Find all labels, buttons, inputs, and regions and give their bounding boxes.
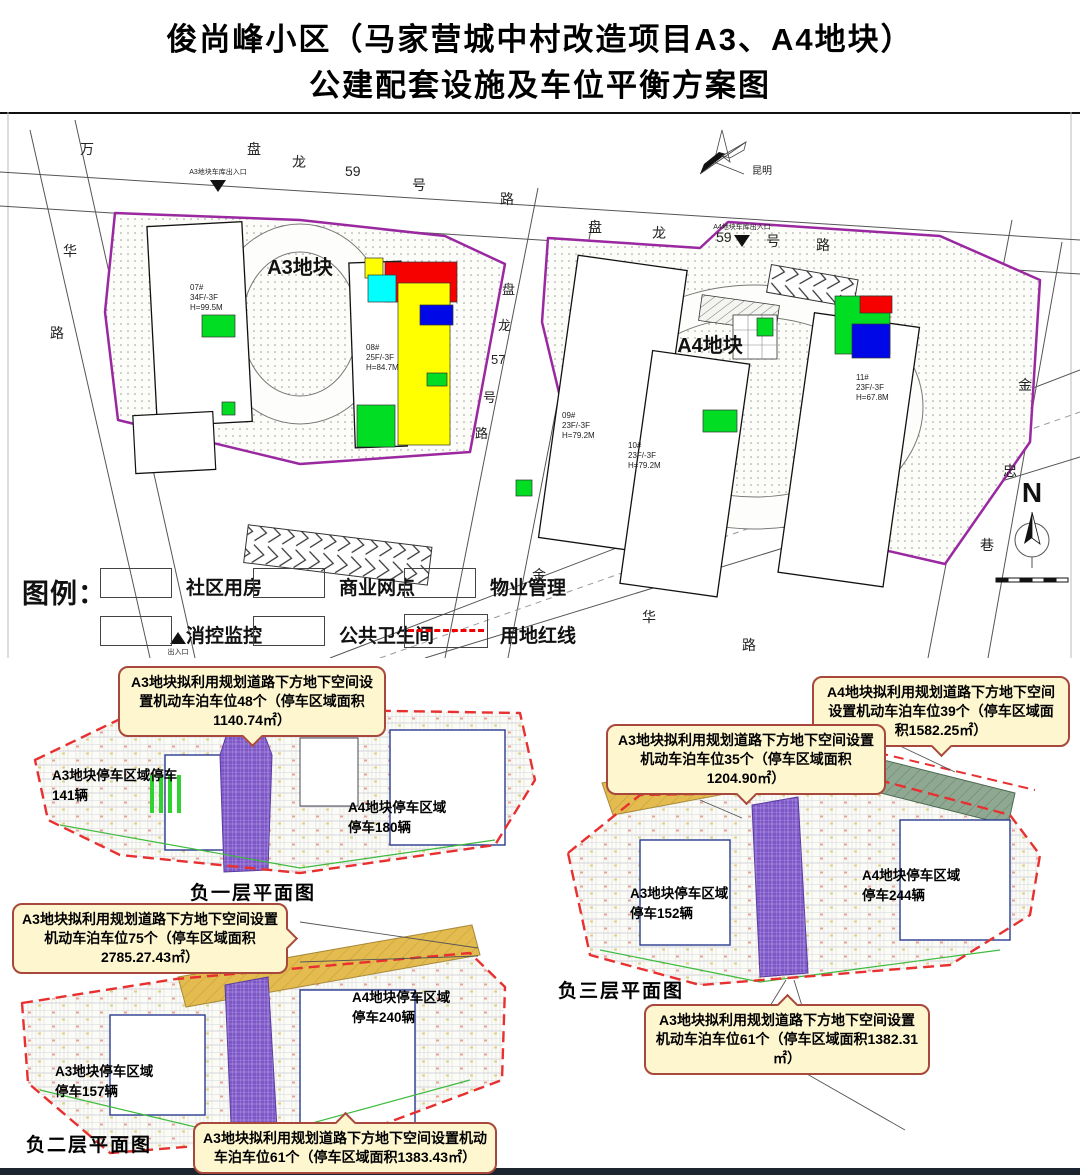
legend-label-redline: 用地红线 — [500, 621, 576, 648]
legend-label-firecontrol: 消控监控 — [186, 621, 262, 648]
svg-text:10#: 10# — [628, 441, 642, 450]
svg-text:25F/-3F: 25F/-3F — [366, 353, 394, 362]
callout-b2-a3-61: A3地块拟利用规划道路下方地下空间设置机动车泊车位61个（停车区域面积1383.… — [193, 1122, 497, 1174]
svg-text:号: 号 — [766, 233, 780, 249]
svg-text:57: 57 — [491, 352, 505, 367]
svg-text:路: 路 — [500, 191, 514, 207]
svg-text:23F/-3F: 23F/-3F — [856, 383, 884, 392]
callout-b1-a3-48: A3地块拟利用规划道路下方地下空间设置机动车泊车位48个（停车区域面积1140.… — [118, 666, 386, 737]
sheet-bottom-border — [0, 1168, 1080, 1175]
svg-text:华: 华 — [63, 243, 77, 259]
legend-swatch-toilet — [253, 616, 325, 646]
svg-text:23F/-3F: 23F/-3F — [562, 421, 590, 430]
svg-text:09#: 09# — [562, 411, 576, 420]
svg-text:金: 金 — [1018, 377, 1032, 393]
b1-caption: 负一层平面图 — [190, 878, 316, 905]
svg-text:路: 路 — [50, 325, 64, 341]
b3-a4-parking-label: A4地块停车区域 停车244辆 — [862, 866, 1012, 905]
b1-a3-parking-label: A3地块停车区域停车 141辆 — [52, 766, 202, 805]
svg-text:A4地块车库出入口: A4地块车库出入口 — [713, 222, 771, 231]
svg-text:万: 万 — [80, 141, 94, 157]
legend-swatch-community — [100, 568, 172, 598]
svg-text:号: 号 — [412, 177, 426, 193]
svg-text:盘: 盘 — [502, 282, 515, 297]
svg-text:盘: 盘 — [588, 219, 602, 235]
compass-rose: 昆明 — [700, 130, 772, 177]
svg-text:龙: 龙 — [498, 318, 511, 333]
svg-text:盘: 盘 — [247, 141, 261, 157]
legend: 图例： 社区用房 商业网点 物业管理 消控监控 公共卫生间 用地红线 — [0, 558, 680, 658]
b3-caption: 负三层平面图 — [558, 976, 684, 1003]
svg-text:H=84.7M: H=84.7M — [366, 363, 399, 372]
svg-text:34F/-3F: 34F/-3F — [190, 293, 218, 302]
svg-text:路: 路 — [816, 237, 830, 253]
b3-a3-parking-label: A3地块停车区域 停车152辆 — [630, 884, 780, 923]
compass-city-label: 昆明 — [752, 165, 772, 177]
legend-swatch-redline — [404, 614, 488, 648]
callout-b3-a3-61: A3地块拟利用规划道路下方地下空间设置机动车泊车位61个（停车区域面积1382.… — [644, 1004, 930, 1075]
sheet-title-line2: 公建配套设施及车位平衡方案图 — [0, 60, 1080, 105]
callout-b3-a3-35: A3地块拟利用规划道路下方地下空间设置机动车泊车位35个（停车区域面积1204.… — [606, 724, 886, 795]
svg-text:巷: 巷 — [980, 537, 994, 553]
b2-a3-parking-label: A3地块停车区域 停车157辆 — [55, 1062, 205, 1101]
legend-title: 图例： — [22, 572, 106, 611]
legend-swatch-firecontrol — [100, 616, 172, 646]
b2-a4-parking-label: A4地块停车区域 停车240辆 — [352, 988, 492, 1027]
legend-label-property: 物业管理 — [490, 573, 566, 600]
svg-text:龙: 龙 — [652, 225, 666, 241]
svg-text:N: N — [1022, 477, 1042, 508]
plot-a3-label: A3地块 — [267, 256, 334, 279]
svg-text:路: 路 — [742, 637, 756, 653]
legend-swatch-property — [404, 568, 476, 598]
legend-label-community: 社区用房 — [186, 573, 262, 600]
plot-a4-label: A4地块 — [677, 334, 744, 357]
svg-text:龙: 龙 — [292, 154, 306, 170]
b1-a4-parking-label: A4地块停车区域 停车180辆 — [348, 798, 488, 837]
svg-text:A3地块车库出入口: A3地块车库出入口 — [189, 167, 247, 176]
sheet-title-line1: 俊尚峰小区（马家营城中村改造项目A3、A4地块） — [0, 14, 1080, 59]
scale-bar — [996, 578, 1068, 582]
svg-text:59: 59 — [716, 229, 732, 245]
svg-text:07#: 07# — [190, 283, 204, 292]
drawing-sheet: 俊尚峰小区（马家营城中村改造项目A3、A4地块） 公建配套设施及车位平衡方案图 — [0, 0, 1080, 1175]
redline-sample — [408, 629, 483, 632]
svg-text:H=79.2M: H=79.2M — [628, 461, 661, 470]
title-block: 俊尚峰小区（马家营城中村改造项目A3、A4地块） 公建配套设施及车位平衡方案图 — [0, 0, 1080, 114]
svg-text:08#: 08# — [366, 343, 380, 352]
svg-text:忠: 忠 — [1003, 463, 1017, 479]
svg-text:H=67.8M: H=67.8M — [856, 393, 889, 402]
svg-text:号: 号 — [483, 390, 496, 405]
svg-text:H=99.5M: H=99.5M — [190, 303, 223, 312]
north-arrow: N — [996, 477, 1068, 582]
legend-swatch-commerce — [253, 568, 325, 598]
svg-text:路: 路 — [475, 426, 488, 441]
svg-text:H=79.2M: H=79.2M — [562, 431, 595, 440]
callout-b2-a3-75: A3地块拟利用规划道路下方地下空间设置机动车泊车位75个（停车区域面积2785.… — [12, 903, 288, 974]
svg-text:59: 59 — [345, 163, 361, 179]
svg-text:11#: 11# — [856, 373, 869, 382]
svg-text:23F/-3F: 23F/-3F — [628, 451, 656, 460]
b2-caption: 负二层平面图 — [26, 1130, 152, 1157]
